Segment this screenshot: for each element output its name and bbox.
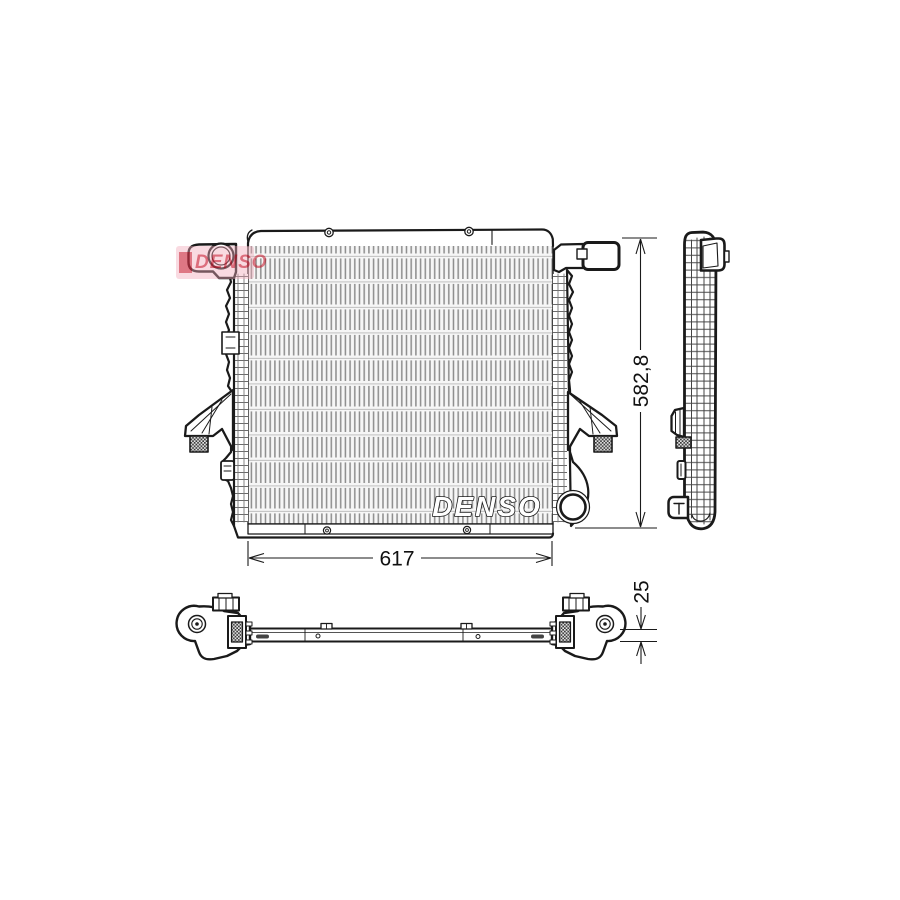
- right-top-bracket: [583, 243, 619, 270]
- top-screw-right: [465, 227, 473, 235]
- bar-slot-left: [256, 635, 269, 639]
- radiator-drawing-svg: DENSO: [0, 0, 900, 900]
- bar-slot-right: [531, 635, 544, 639]
- side-view: [669, 232, 730, 529]
- top-view-right-end: [550, 594, 625, 660]
- dimension-width: 617: [248, 541, 552, 571]
- denso-core-watermark: DENSO: [432, 491, 542, 522]
- front-view: DENSO: [185, 227, 619, 537]
- top-view-bar: [250, 629, 550, 642]
- depth-dimension-label: 25: [631, 580, 654, 603]
- top-view: [177, 594, 626, 660]
- right-tank-ribs: [553, 274, 567, 522]
- top-screw-left: [325, 228, 333, 236]
- left-mount-peg: [190, 436, 208, 452]
- side-mount-bracket: [672, 408, 685, 437]
- left-tank-ribs: [234, 274, 248, 522]
- top-tank-bar: [248, 230, 553, 247]
- bottom-tank-bar: [248, 524, 553, 534]
- bottom-screw-right: [463, 526, 470, 533]
- side-drain-outlet: [669, 497, 689, 518]
- side-mount-peg: [676, 437, 691, 448]
- side-profile: [685, 232, 717, 529]
- hose-port: [561, 495, 586, 520]
- radiator-core: [248, 244, 553, 524]
- width-dimension-label: 617: [379, 548, 414, 571]
- right-mount-peg: [594, 436, 612, 452]
- bottom-screw-left: [323, 527, 330, 534]
- radiator-technical-drawing: DENSO: [0, 0, 900, 900]
- side-top-bracket: [701, 239, 725, 271]
- height-dimension-label: 582,8: [630, 355, 653, 408]
- top-view-left-end: [177, 594, 252, 660]
